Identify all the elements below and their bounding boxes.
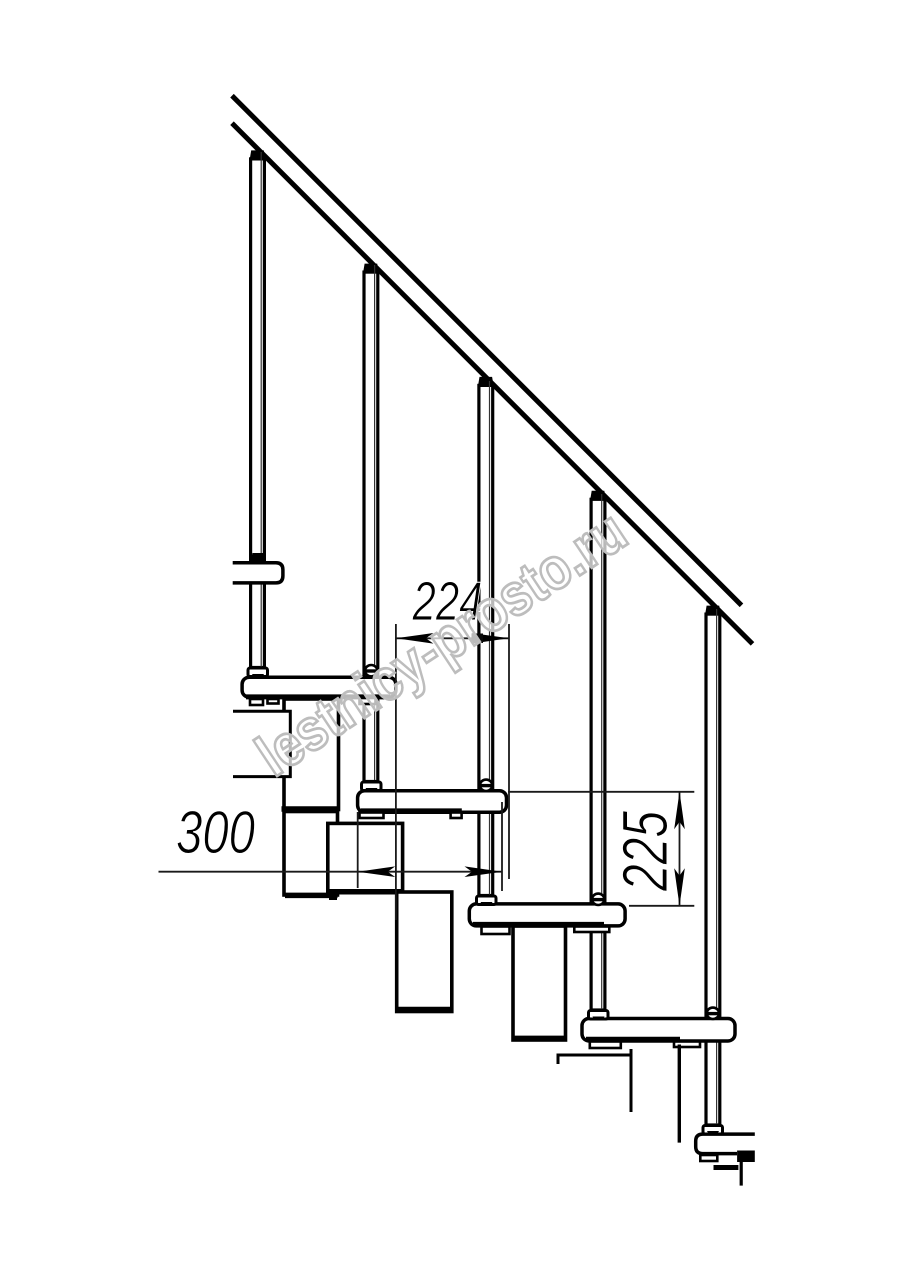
svg-text:225: 225 [609, 811, 681, 892]
svg-text:300: 300 [176, 799, 255, 866]
